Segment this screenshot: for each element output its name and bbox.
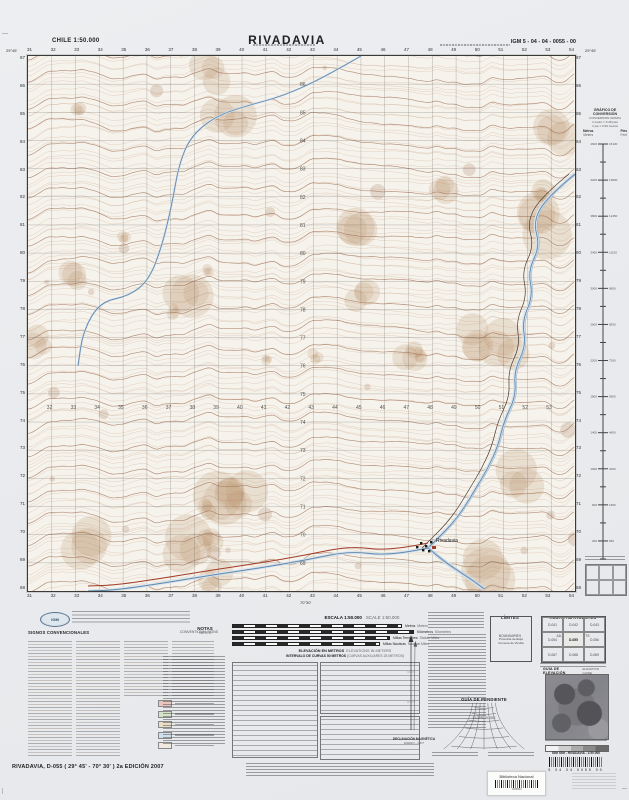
grid-number: 87 (15, 55, 25, 60)
license-note-microtext (428, 612, 484, 628)
grid-number: 51 (498, 593, 503, 599)
top-microtext-left (253, 44, 315, 46)
adjoining-sheet-cell: D-069 (584, 647, 605, 662)
grid-number: 69 (15, 557, 25, 562)
grid-number: 39 (216, 593, 221, 599)
grid-number: 42 (286, 47, 291, 53)
grid-number: 39 (216, 47, 221, 53)
corner-lat-top-left: 29°45' (6, 48, 17, 53)
grid-number: 48 (428, 47, 433, 53)
sheet-edition-title: RIVADAVIA, D-055 ( 29° 45' - 70° 30' ) 2… (12, 764, 164, 770)
grid-number: 32 (51, 47, 56, 53)
grid-number: 86 (15, 83, 25, 88)
grid-northings-left: 8786858483828180797877767574737271706968 (15, 55, 25, 590)
grid-number: 31 (27, 47, 32, 53)
corner-lat-top-right: 29°45' (585, 48, 596, 53)
grid-number: 40 (239, 47, 244, 53)
grid-eastings-top: 3132333435363738394041424344454647484950… (27, 47, 574, 53)
grid-number: 36 (145, 593, 150, 599)
conversion-eq2: 1 pie = 0.30 metros (583, 124, 627, 128)
grid-number: 41 (263, 47, 268, 53)
limits-line2: Comuna de Vicuña (498, 641, 523, 645)
grid-number: 72 (15, 473, 25, 478)
grid-number: 80 (15, 250, 25, 255)
topographic-map (28, 56, 575, 591)
grid-number: 43 (310, 47, 315, 53)
grid-number: 44 (333, 47, 338, 53)
corner-lon-bottom: 70°30' (300, 600, 311, 605)
grid-number: 53 (545, 47, 550, 53)
grid-number: 45 (357, 47, 362, 53)
elevation-guide-ticks (545, 740, 607, 743)
legend-title: SIGNOS CONVENCIONALES (28, 630, 89, 635)
publisher-imprint-microtext (72, 611, 190, 625)
altimetric-limits-header (585, 556, 625, 562)
grid-number: 68 (15, 585, 25, 590)
grid-number: 32 (51, 593, 56, 599)
legend-column-3 (124, 641, 168, 696)
scale-bar-label: MetrosMeters (405, 624, 428, 628)
sheet-number: IGM 5 - 04 - 04 - 0055 - 00 (511, 39, 576, 45)
grid-number: 46 (380, 47, 385, 53)
limits-box: — · — Provincia de Elqui Comuna de Vicuñ… (490, 616, 532, 662)
sheet-barcode (549, 757, 603, 767)
slope-footnote-right (488, 752, 534, 758)
grid-number: 74 (15, 418, 25, 423)
adjoining-sheet-cell: D-054 (542, 632, 563, 647)
grid-number: 78 (15, 306, 25, 311)
grid-number: 54 (569, 47, 574, 53)
igm-logo: IGM (40, 612, 70, 627)
grid-number: 47 (404, 593, 409, 599)
altimetric-limits-table (585, 564, 627, 596)
grid-number: 42 (286, 593, 291, 599)
grid-number: 49 (451, 47, 456, 53)
notes-microtext-column (163, 656, 225, 746)
top-microtext-right (440, 44, 510, 46)
grid-number: 77 (15, 334, 25, 339)
adjoining-sheet-cell: D-055 (563, 632, 584, 647)
adjoining-sheet-cell: D-056 (584, 632, 605, 647)
grid-number: 36 (145, 47, 150, 53)
grid-number: 82 (15, 194, 25, 199)
grid-number: 41 (263, 593, 268, 599)
grid-number: 52 (522, 593, 527, 599)
grid-number: 49 (451, 593, 456, 599)
grid-number: 81 (15, 222, 25, 227)
grid-number: 33 (74, 47, 79, 53)
adjoining-sheet-cell: D-041 (542, 617, 563, 632)
adjoining-sheet-cell: D-043 (584, 617, 605, 632)
library-barcode (495, 780, 539, 788)
grid-number: 34 (98, 593, 103, 599)
grid-number: 86 (576, 83, 586, 88)
grid-number: 84 (15, 139, 25, 144)
grid-number: 45 (357, 593, 362, 599)
grid-number: 87 (576, 55, 586, 60)
grid-number: 71 (15, 501, 25, 506)
grid-number: 38 (192, 47, 197, 53)
scale-bar (232, 624, 402, 629)
grid-number: 48 (428, 593, 433, 599)
library-sticker: Biblioteca Nacional 1095820 (487, 771, 546, 796)
library-number: 1095820 (488, 788, 545, 791)
grid-number: 33 (74, 593, 79, 599)
grid-number: 50 (475, 47, 480, 53)
magnetic-declination-diagram (396, 632, 426, 734)
scale-bar (232, 636, 390, 641)
units-meters-label: MetrosMeters (583, 129, 593, 137)
grid-number: 43 (310, 593, 315, 599)
units-feet-label: PiesFeet (620, 129, 627, 137)
grid-number: 38 (192, 593, 197, 599)
grid-number: 35 (121, 47, 126, 53)
grid-number: 51 (498, 47, 503, 53)
adjoining-sheet-cell: D-068 (563, 647, 584, 662)
conversion-ruler (583, 139, 623, 564)
legend-column-1 (28, 641, 72, 758)
grid-number: 35 (121, 593, 126, 599)
grid-number: 73 (15, 445, 25, 450)
grid-number: 31 (27, 593, 32, 599)
adjoining-sheet-cell: D-042 (563, 617, 584, 632)
grid-number: 52 (522, 47, 527, 53)
corner-mark (2, 33, 8, 34)
grid-number: 54 (569, 593, 574, 599)
grid-number: 76 (15, 362, 25, 367)
corner-mark (2, 788, 3, 794)
sheet-barcode-digits: 5 04 04 0055 00 (545, 768, 607, 772)
grid-eastings-bottom: 3132333435363738394041424344454647484950… (27, 593, 574, 599)
grid-number: 75 (15, 390, 25, 395)
grid-number: 50 (475, 593, 480, 599)
grid-number: 70 (15, 529, 25, 534)
grid-number: 85 (15, 111, 25, 116)
slope-guide-fan (436, 699, 532, 751)
grid-number: 53 (545, 593, 550, 599)
note-box-1 (232, 662, 318, 758)
elevation-guide-thumbnail (545, 674, 609, 740)
elevation-guide-caption: IGM IGM - RIVADAVIA - 1:50.000 (543, 751, 609, 755)
grid-number: 37 (168, 593, 173, 599)
adjoining-sheet-cell: D-067 (542, 647, 563, 662)
conversion-graph: GRÁFICO DE CONVERSIÓN CONVERSION GRAPH 1… (583, 108, 627, 564)
declination-caption: DECLINACIÓN MAGNÉTICA ENERO - 2007 (388, 737, 440, 745)
grid-number: 83 (15, 167, 25, 172)
conversion-title: GRÁFICO DE CONVERSIÓN (583, 108, 627, 116)
grid-number: 40 (239, 593, 244, 599)
bottom-imprint-paragraph (246, 763, 434, 776)
library-label: Biblioteca Nacional (488, 774, 545, 779)
grid-number: 79 (15, 278, 25, 283)
notes-label: NOTASNOTES (190, 626, 220, 635)
corner-mark (622, 788, 627, 789)
slope-footnote-left (432, 752, 478, 758)
grid-number: 44 (333, 593, 338, 599)
legend-column-2 (76, 641, 120, 758)
scale-bar (232, 630, 414, 635)
grid-number: 46 (380, 593, 385, 599)
grid-number: 34 (98, 47, 103, 53)
grid-number: 37 (168, 47, 173, 53)
adjoining-sheets-grid: D-041D-042D-043D-054D-055D-056D-067D-068… (541, 616, 606, 663)
ink-stamp (572, 773, 616, 789)
grid-number: 47 (404, 47, 409, 53)
scale-bar (232, 642, 380, 647)
map-frame (27, 55, 576, 592)
